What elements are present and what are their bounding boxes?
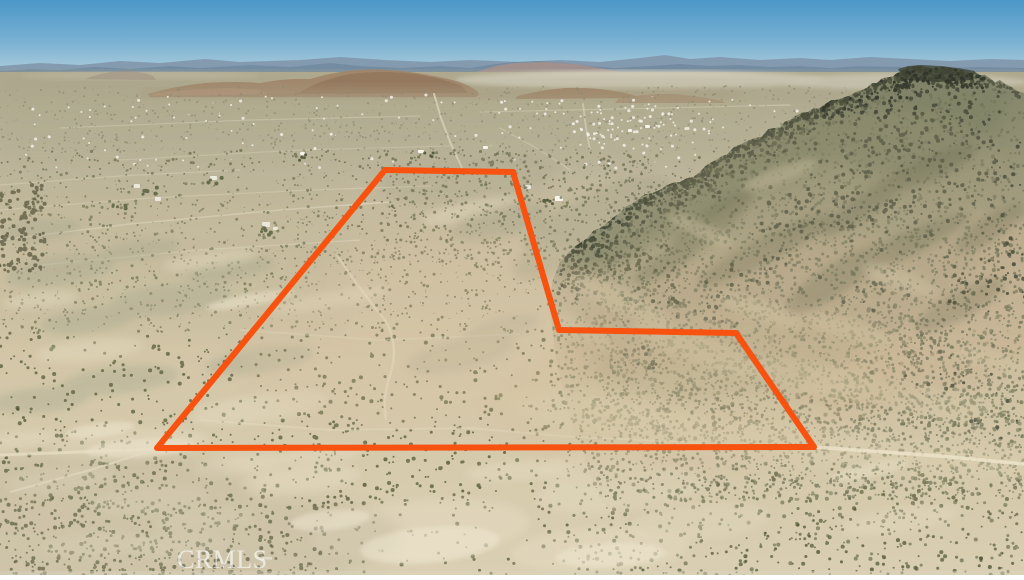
svg-text:CRMLS: CRMLS (177, 545, 268, 574)
